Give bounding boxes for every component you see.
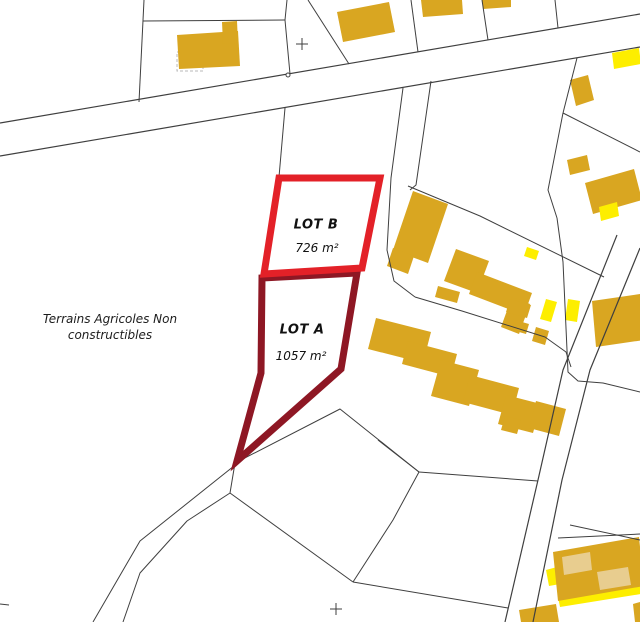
parcel-boundary-line bbox=[570, 525, 640, 540]
cadastral-svg bbox=[0, 0, 640, 622]
survey-point-mark bbox=[286, 73, 290, 77]
parcel-boundary-line bbox=[411, 0, 418, 52]
parcel-boundary-line bbox=[410, 81, 431, 190]
parcel-boundary-line bbox=[0, 604, 9, 605]
building-footprint bbox=[592, 294, 640, 347]
building-highlight bbox=[540, 299, 557, 322]
building-footprint bbox=[337, 2, 395, 42]
lot-b-label: LOT B bbox=[294, 219, 339, 234]
lot-b-area: 726 m² bbox=[295, 242, 338, 256]
parcel-boundary-line bbox=[419, 472, 538, 481]
parcel-boundary-line bbox=[353, 472, 419, 582]
parcel-boundary-line bbox=[285, 0, 290, 74]
parcel-boundary-line bbox=[139, 0, 144, 102]
building-highlight bbox=[524, 247, 539, 260]
road-edge-line bbox=[0, 47, 640, 156]
road-edge-line bbox=[0, 14, 640, 123]
building-footprint bbox=[421, 0, 463, 17]
lot-a-outline[interactable] bbox=[237, 273, 357, 461]
parcel-boundary-line bbox=[555, 0, 558, 28]
parcel-boundary-line bbox=[353, 582, 508, 608]
agricultural-note-line2: constructibles bbox=[68, 329, 152, 343]
building-footprint bbox=[482, 0, 511, 9]
building-footprint bbox=[633, 602, 640, 622]
building-footprint bbox=[435, 286, 460, 303]
parcel-boundary-line bbox=[548, 113, 563, 218]
building-footprint bbox=[567, 155, 590, 175]
building-footprint bbox=[222, 21, 238, 44]
parcel-boundary-line bbox=[143, 20, 285, 21]
building-footprint bbox=[519, 604, 559, 622]
parcel-boundary-line bbox=[93, 466, 234, 622]
parcel-boundary-line bbox=[230, 493, 353, 582]
lot-a-label: LOT A bbox=[280, 324, 325, 339]
parcel-boundary-line bbox=[279, 108, 285, 177]
cadastral-map: LOT B 726 m² LOT A 1057 m² Terrains Agri… bbox=[0, 0, 640, 622]
agricultural-note-line1: Terrains Agricoles Non bbox=[43, 313, 177, 327]
building-highlight bbox=[565, 299, 580, 322]
lot-a-area: 1057 m² bbox=[276, 350, 327, 364]
survey-cross-mark bbox=[296, 38, 308, 50]
parcel-boundary-line bbox=[378, 440, 419, 472]
parcel-boundary-line bbox=[563, 113, 640, 152]
survey-cross-mark bbox=[330, 603, 342, 615]
building-footprint bbox=[570, 75, 594, 106]
